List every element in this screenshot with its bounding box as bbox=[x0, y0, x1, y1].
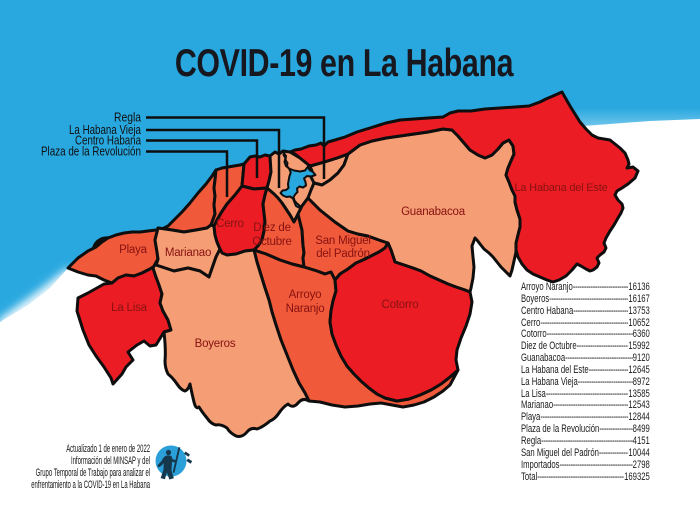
svg-text:La Habana del Este: La Habana del Este bbox=[514, 182, 607, 194]
svg-text:Marianao: Marianao bbox=[165, 247, 211, 259]
svg-text:Octubre: Octubre bbox=[252, 236, 292, 248]
svg-text:Plaza de la Revolución: Plaza de la Revolución bbox=[41, 145, 141, 159]
svg-text:Naranjo: Naranjo bbox=[286, 303, 325, 315]
svg-text:San Miguel: San Miguel bbox=[315, 235, 371, 247]
svg-text:Cerro: Cerro bbox=[216, 218, 244, 230]
svg-text:Arroyo: Arroyo bbox=[289, 289, 322, 301]
svg-text:Cotorro: Cotorro bbox=[382, 299, 419, 311]
svg-text:Playa: Playa bbox=[119, 244, 148, 256]
svg-text:Diez de: Diez de bbox=[253, 222, 291, 234]
svg-text:Guanabacoa: Guanabacoa bbox=[401, 206, 466, 218]
svg-text:La Lisa: La Lisa bbox=[111, 302, 147, 314]
svg-text:del Padrón: del Padrón bbox=[316, 248, 370, 260]
svg-text:Boyeros: Boyeros bbox=[195, 338, 236, 350]
